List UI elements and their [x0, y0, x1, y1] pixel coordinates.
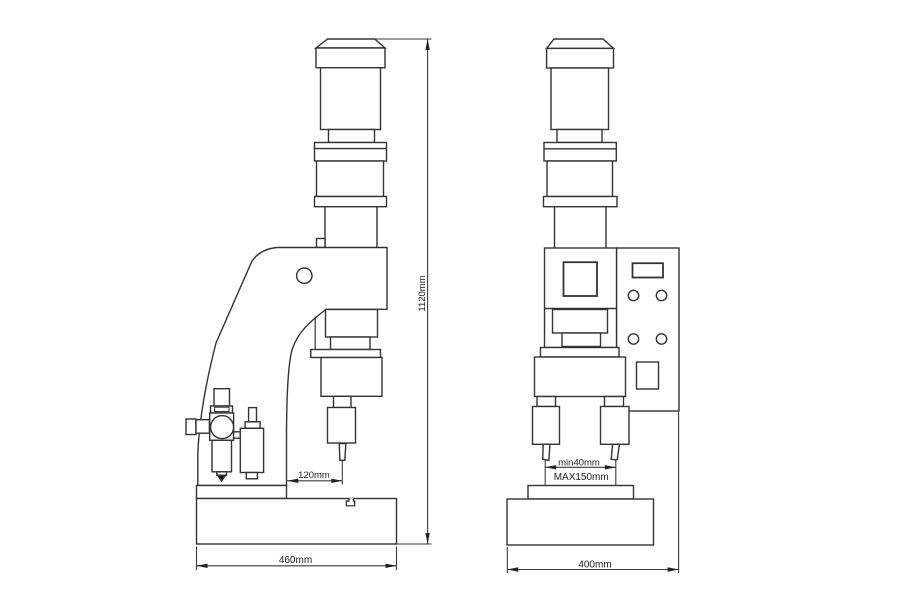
svg-text:120mm: 120mm	[298, 470, 330, 481]
svg-text:min40mm: min40mm	[558, 457, 600, 468]
svg-text:460mm: 460mm	[279, 555, 312, 566]
svg-text:MAX150mm: MAX150mm	[554, 472, 609, 483]
svg-text:1120mm: 1120mm	[417, 275, 428, 311]
svg-text:400mm: 400mm	[578, 560, 611, 571]
